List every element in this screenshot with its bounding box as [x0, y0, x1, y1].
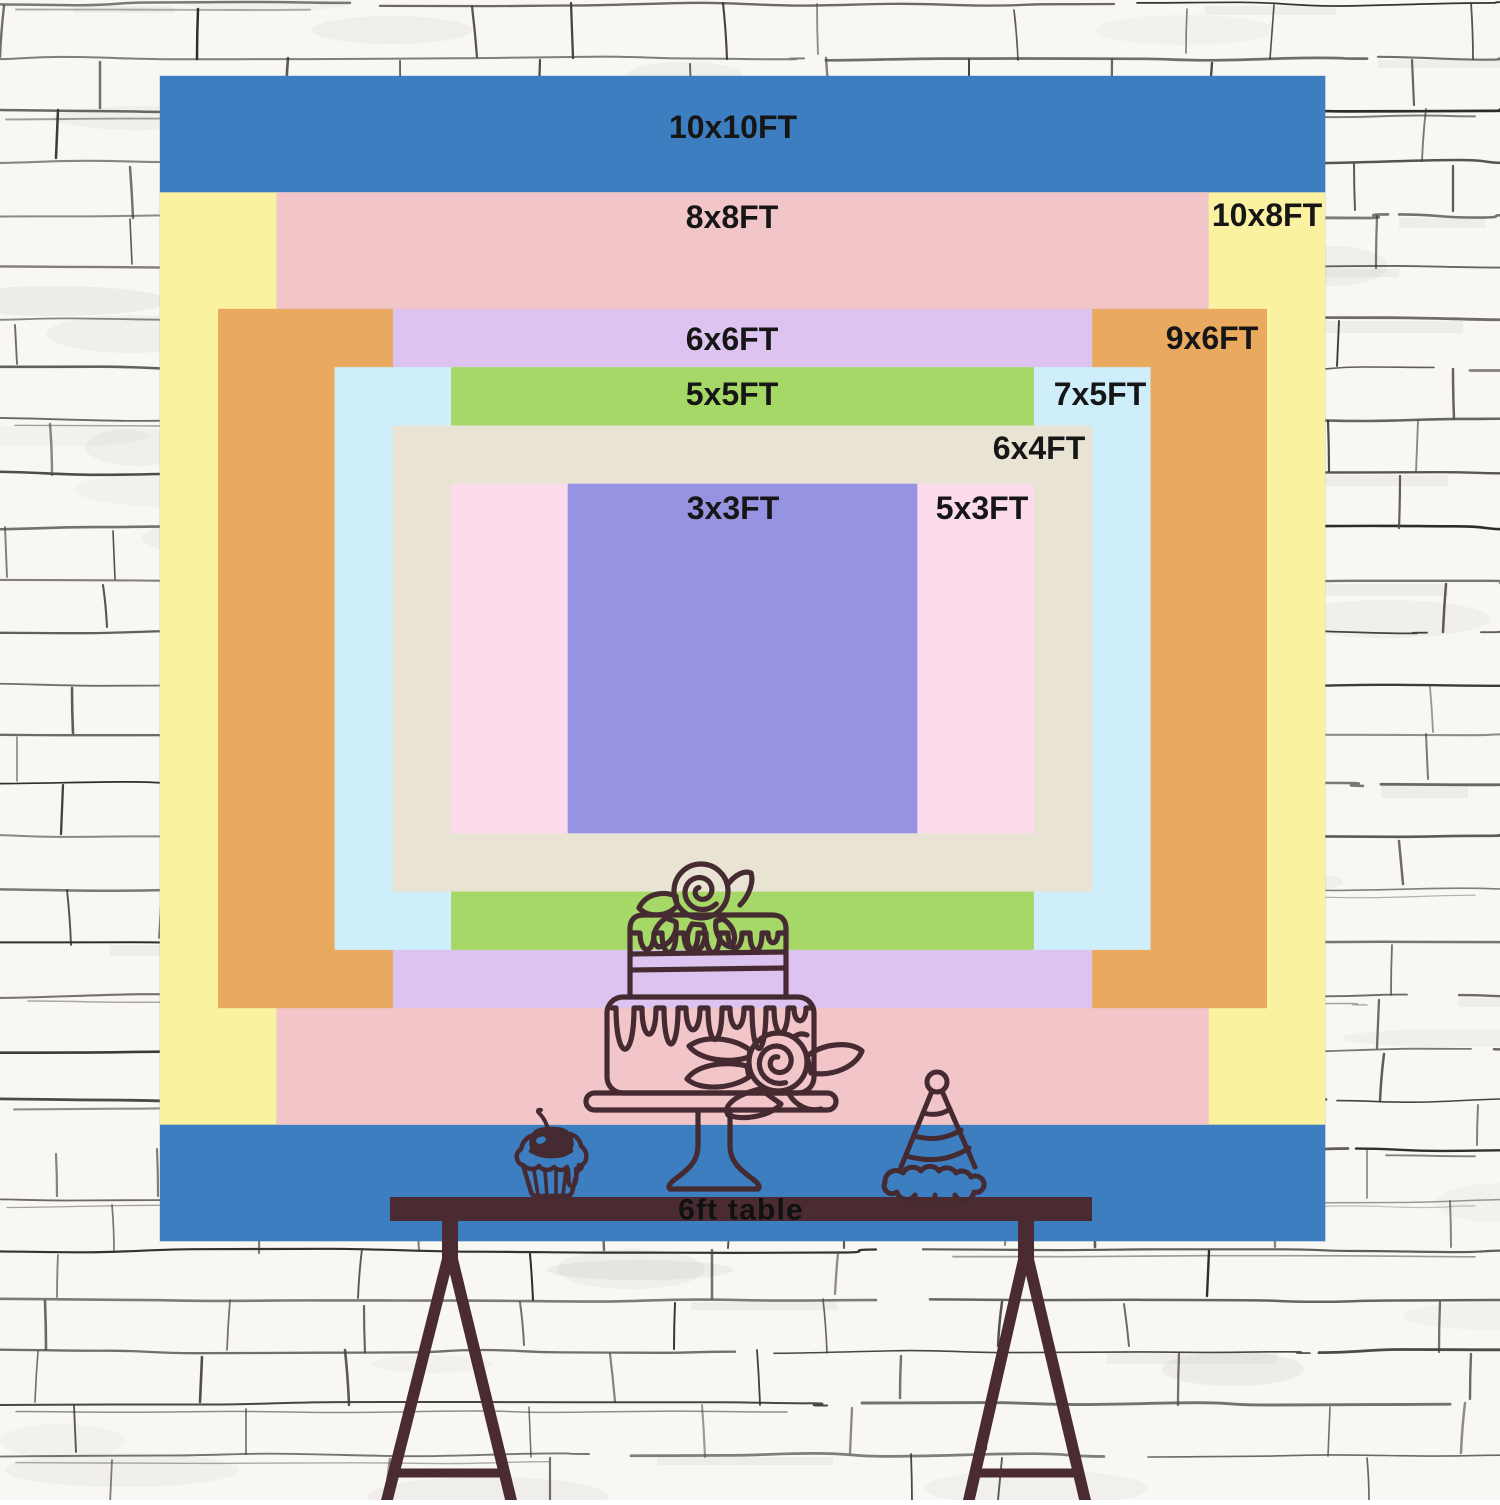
svg-text:3x3FT: 3x3FT [687, 490, 780, 526]
svg-text:6x6FT: 6x6FT [686, 321, 779, 357]
svg-text:5x5FT: 5x5FT [686, 376, 779, 412]
svg-text:5x3FT: 5x3FT [936, 490, 1029, 526]
svg-text:6x4FT: 6x4FT [993, 430, 1086, 466]
svg-text:6ft table: 6ft table [678, 1194, 804, 1227]
svg-text:8x8FT: 8x8FT [686, 199, 779, 235]
svg-text:10x10FT: 10x10FT [669, 109, 798, 145]
svg-text:10x8FT: 10x8FT [1212, 197, 1323, 233]
svg-text:9x6FT: 9x6FT [1166, 320, 1259, 356]
svg-text:7x5FT: 7x5FT [1054, 376, 1147, 412]
